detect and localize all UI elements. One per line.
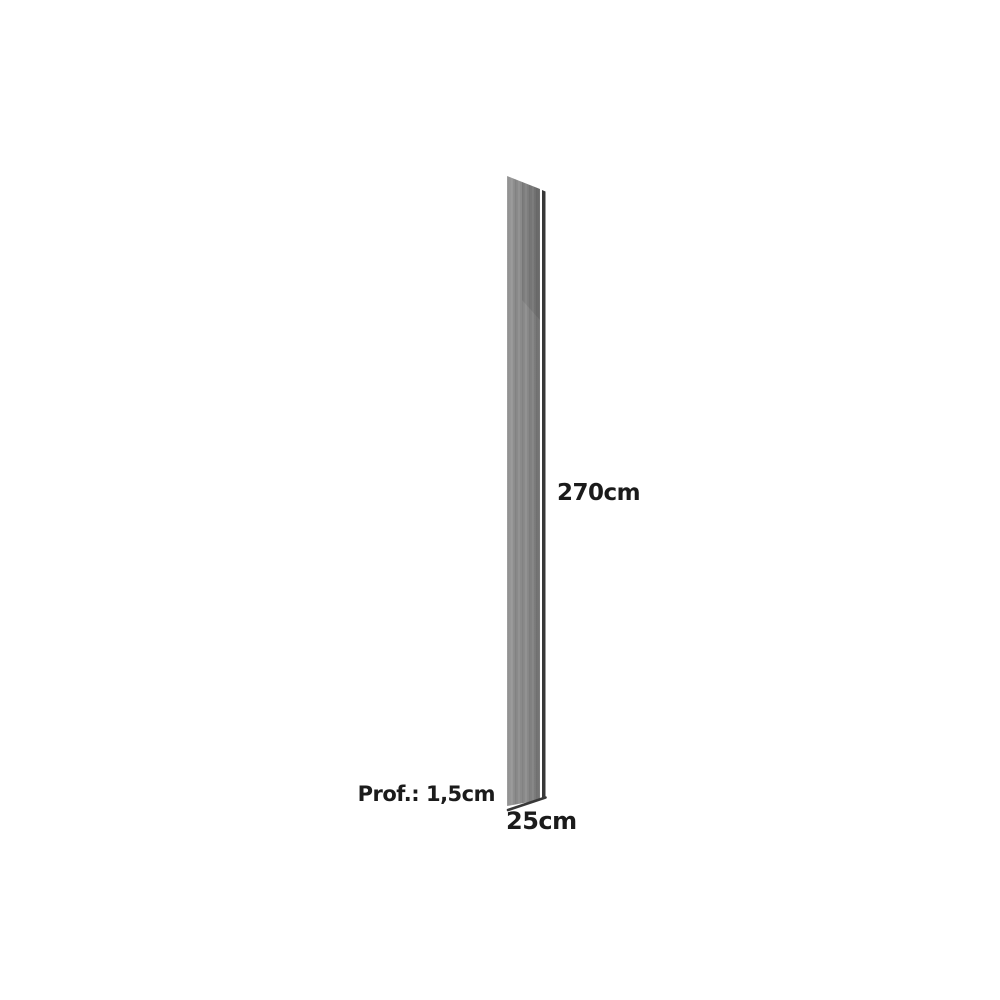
panel-illustration (0, 0, 1000, 1000)
panel-top-shading (522, 182, 540, 320)
width-dimension-label: 25cm (506, 809, 577, 833)
height-dimension-label: 270cm (557, 482, 640, 505)
depth-dimension-label: Prof.: 1,5cm (357, 784, 495, 805)
panel-right-edge (542, 190, 546, 798)
product-image: 270cm Prof.: 1,5cm 25cm (0, 0, 1000, 1000)
